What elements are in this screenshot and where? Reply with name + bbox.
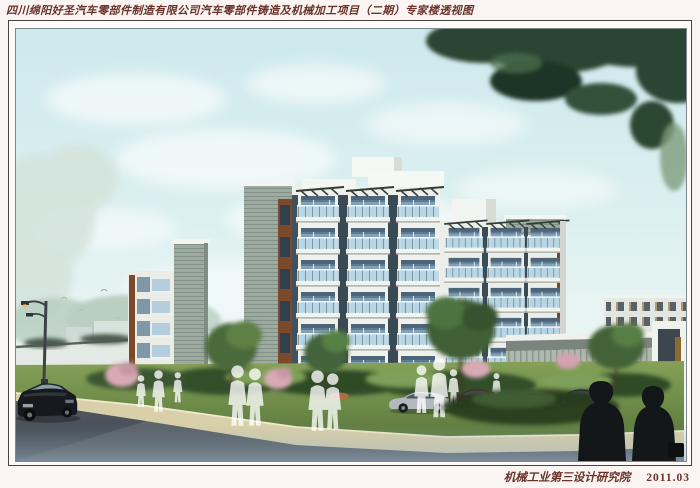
sheet-title: 四川绵阳好圣汽车零部件制造有限公司汽车零部件铸造及机械加工项目（二期）专家楼透视…	[6, 2, 696, 18]
sheet-date: 2011.03	[646, 472, 690, 484]
rendering-scene	[16, 29, 686, 461]
institute-name: 机械工业第三设计研究院	[504, 472, 631, 484]
sheet-caption: 机械工业第三设计研究院2011.03	[504, 469, 690, 485]
perspective-rendering	[15, 28, 687, 462]
